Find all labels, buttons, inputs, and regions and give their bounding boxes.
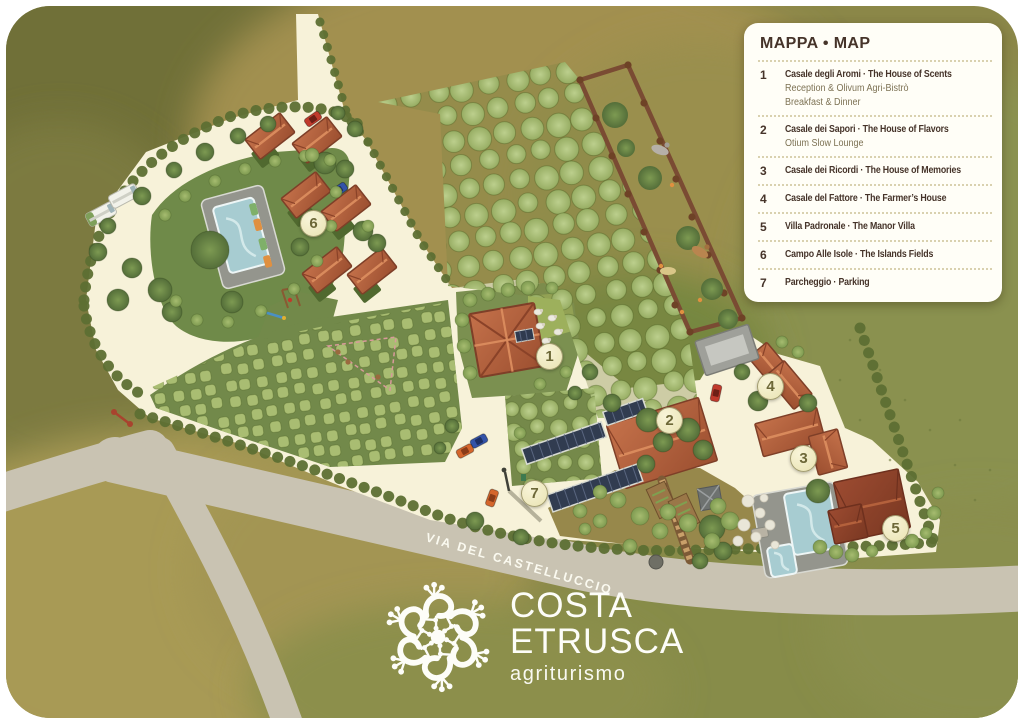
legend-item-6: 6 Campo Alle Isole · The Islands Fields <box>758 240 992 268</box>
legend-item-3-title: Casale dei Ricordi · The House of Memori… <box>785 164 967 177</box>
map-marker-2: 2 <box>656 407 683 434</box>
legend-item-1-title: Casale degli Aromi · The House of Scents <box>785 68 967 81</box>
logo-line2: ETRUSCA <box>510 624 684 660</box>
marker-4-number: 4 <box>766 378 774 395</box>
legend-title: MAPPA • MAP <box>758 32 992 60</box>
logo-line1: COSTA <box>510 588 684 624</box>
marker-2-number: 2 <box>665 412 673 429</box>
legend-item-1-sub1: Reception & Olivum Agri-Bistrò <box>785 82 971 95</box>
logo-line3: agriturismo <box>510 663 684 686</box>
logo: COSTA ETRUSCA agriturismo <box>380 578 684 696</box>
agriturismo-map: VIA DEL CASTELLUCCIO 1 2 3 4 5 6 7 MAPPA… <box>0 0 1024 724</box>
legend-item-3: 3 Casale dei Ricordi · The House of Memo… <box>758 156 992 184</box>
map-marker-1: 1 <box>536 343 563 370</box>
map-marker-5: 5 <box>882 515 909 542</box>
legend-item-2-number: 2 <box>760 123 777 150</box>
legend-item-5-title: Villa Padronale · The Manor Villa <box>785 220 967 233</box>
map-marker-7: 7 <box>521 480 548 507</box>
map-marker-4: 4 <box>757 373 784 400</box>
etruscan-horses-emblem-icon <box>380 578 496 696</box>
legend-item-7-title: Parcheggio · Parking <box>785 276 967 289</box>
legend-item-2-title: Casale dei Sapori · The House of Flavors <box>785 123 967 136</box>
legend-card: MAPPA • MAP 1 Casale degli Aromi · The H… <box>744 23 1002 302</box>
legend-item-4-number: 4 <box>760 192 777 206</box>
legend-item-4: 4 Casale del Fattore · The Farmer’s Hous… <box>758 184 992 212</box>
legend-item-5: 5 Villa Padronale · The Manor Villa <box>758 212 992 240</box>
marker-3-number: 3 <box>799 450 807 467</box>
legend-item-2: 2 Casale dei Sapori · The House of Flavo… <box>758 115 992 156</box>
legend-item-4-title: Casale del Fattore · The Farmer’s House <box>785 192 967 205</box>
legend-item-5-number: 5 <box>760 220 777 234</box>
map-marker-3: 3 <box>790 445 817 472</box>
legend-item-1-sub2: Breakfast & Dinner <box>785 96 971 109</box>
legend-item-1: 1 Casale degli Aromi · The House of Scen… <box>758 60 992 115</box>
legend-item-7-number: 7 <box>760 276 777 290</box>
legend-item-1-number: 1 <box>760 68 777 109</box>
marker-1-number: 1 <box>545 348 553 365</box>
legend-item-3-number: 3 <box>760 164 777 178</box>
legend-item-7: 7 Parcheggio · Parking <box>758 268 992 296</box>
logo-wordmark: COSTA ETRUSCA agriturismo <box>510 588 684 685</box>
marker-5-number: 5 <box>891 520 899 537</box>
legend-item-2-sub1: Otium Slow Lounge <box>785 137 971 150</box>
marker-7-number: 7 <box>530 485 538 502</box>
map-marker-6: 6 <box>300 210 327 237</box>
legend-item-6-title: Campo Alle Isole · The Islands Fields <box>785 248 967 261</box>
legend-item-6-number: 6 <box>760 248 777 262</box>
marker-6-number: 6 <box>309 215 317 232</box>
